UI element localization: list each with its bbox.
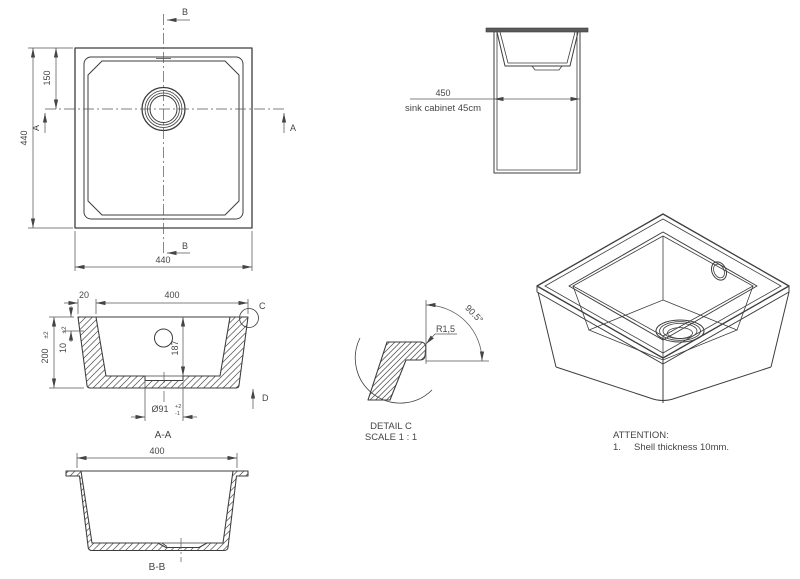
isometric-view: [537, 214, 789, 403]
dim-rim-width: 20: [79, 290, 89, 300]
countertop: [486, 28, 588, 32]
attention-item-number: 1.: [613, 442, 621, 453]
section-aa-label: A-A: [155, 430, 172, 441]
dim-drain-offset: 150: [42, 70, 52, 85]
detail-c-view: 90.5° R1,5 DETAIL C SCALE 1 : 1: [355, 300, 489, 443]
dim-plan-width: 440: [155, 255, 170, 265]
dim-drain-dia: Ø91: [151, 404, 168, 414]
section-label-a-left: A: [31, 125, 41, 131]
radius-value: R1,5: [436, 324, 455, 334]
detail-c-scale: SCALE 1 : 1: [365, 432, 417, 443]
dim-drain-tol-minus: -1: [175, 411, 180, 417]
dim-cabinet: 450: [435, 88, 450, 98]
drain-stub: [532, 66, 562, 70]
dim-inner-width: 400: [164, 290, 179, 300]
dim-shell: 10: [58, 343, 68, 353]
section-bb-label: B-B: [149, 562, 166, 573]
dim-total-height: 200: [40, 348, 50, 363]
dim-shell-tol: ±2: [61, 326, 68, 334]
attention-item-text: Shell thickness 10mm.: [634, 442, 729, 453]
detail-c-ref: C: [259, 301, 266, 311]
plan-view: A A B B 440 150 440: [19, 7, 296, 271]
shell-section: [78, 317, 248, 388]
dim-total-height-tol: ±2: [43, 331, 50, 339]
cabinet-outline: [494, 32, 580, 173]
dim-plan-height: 440: [19, 130, 29, 145]
section-bb-view: 400 B-B: [66, 446, 248, 573]
cabinet-caption: sink cabinet 45cm: [405, 103, 481, 114]
attention-title: ATTENTION:: [613, 430, 669, 441]
view-d-ref: D: [262, 393, 269, 403]
cabinet-view: 450 sink cabinet 45cm: [405, 28, 588, 173]
attention-note: ATTENTION: 1. Shell thickness 10mm.: [613, 430, 729, 453]
dim-depth: 187: [170, 340, 180, 355]
section-aa-view: 20 400 200 ±2 10 ±2 187 Ø91 +2 -1 A-A C …: [40, 290, 269, 441]
section-label-b-top: B: [182, 7, 188, 17]
section-label-b-bottom: B: [182, 241, 188, 251]
detail-c-title: DETAIL C: [370, 421, 412, 432]
shell-section-bb: [66, 471, 248, 551]
iso-drain: [656, 320, 704, 342]
sink-bowl-elevation: [497, 32, 578, 70]
technical-drawing-canvas: A A B B 440 150 440 450 sink cabinet 45c…: [0, 0, 800, 579]
section-label-a-right: A: [290, 123, 296, 133]
drawing-sheet: A A B B 440 150 440 450 sink cabinet 45c…: [0, 0, 800, 579]
rim-corner-section: [368, 342, 426, 400]
dim-drain-tol-plus: +2: [175, 404, 181, 410]
dim-bb-width: 400: [149, 446, 164, 456]
